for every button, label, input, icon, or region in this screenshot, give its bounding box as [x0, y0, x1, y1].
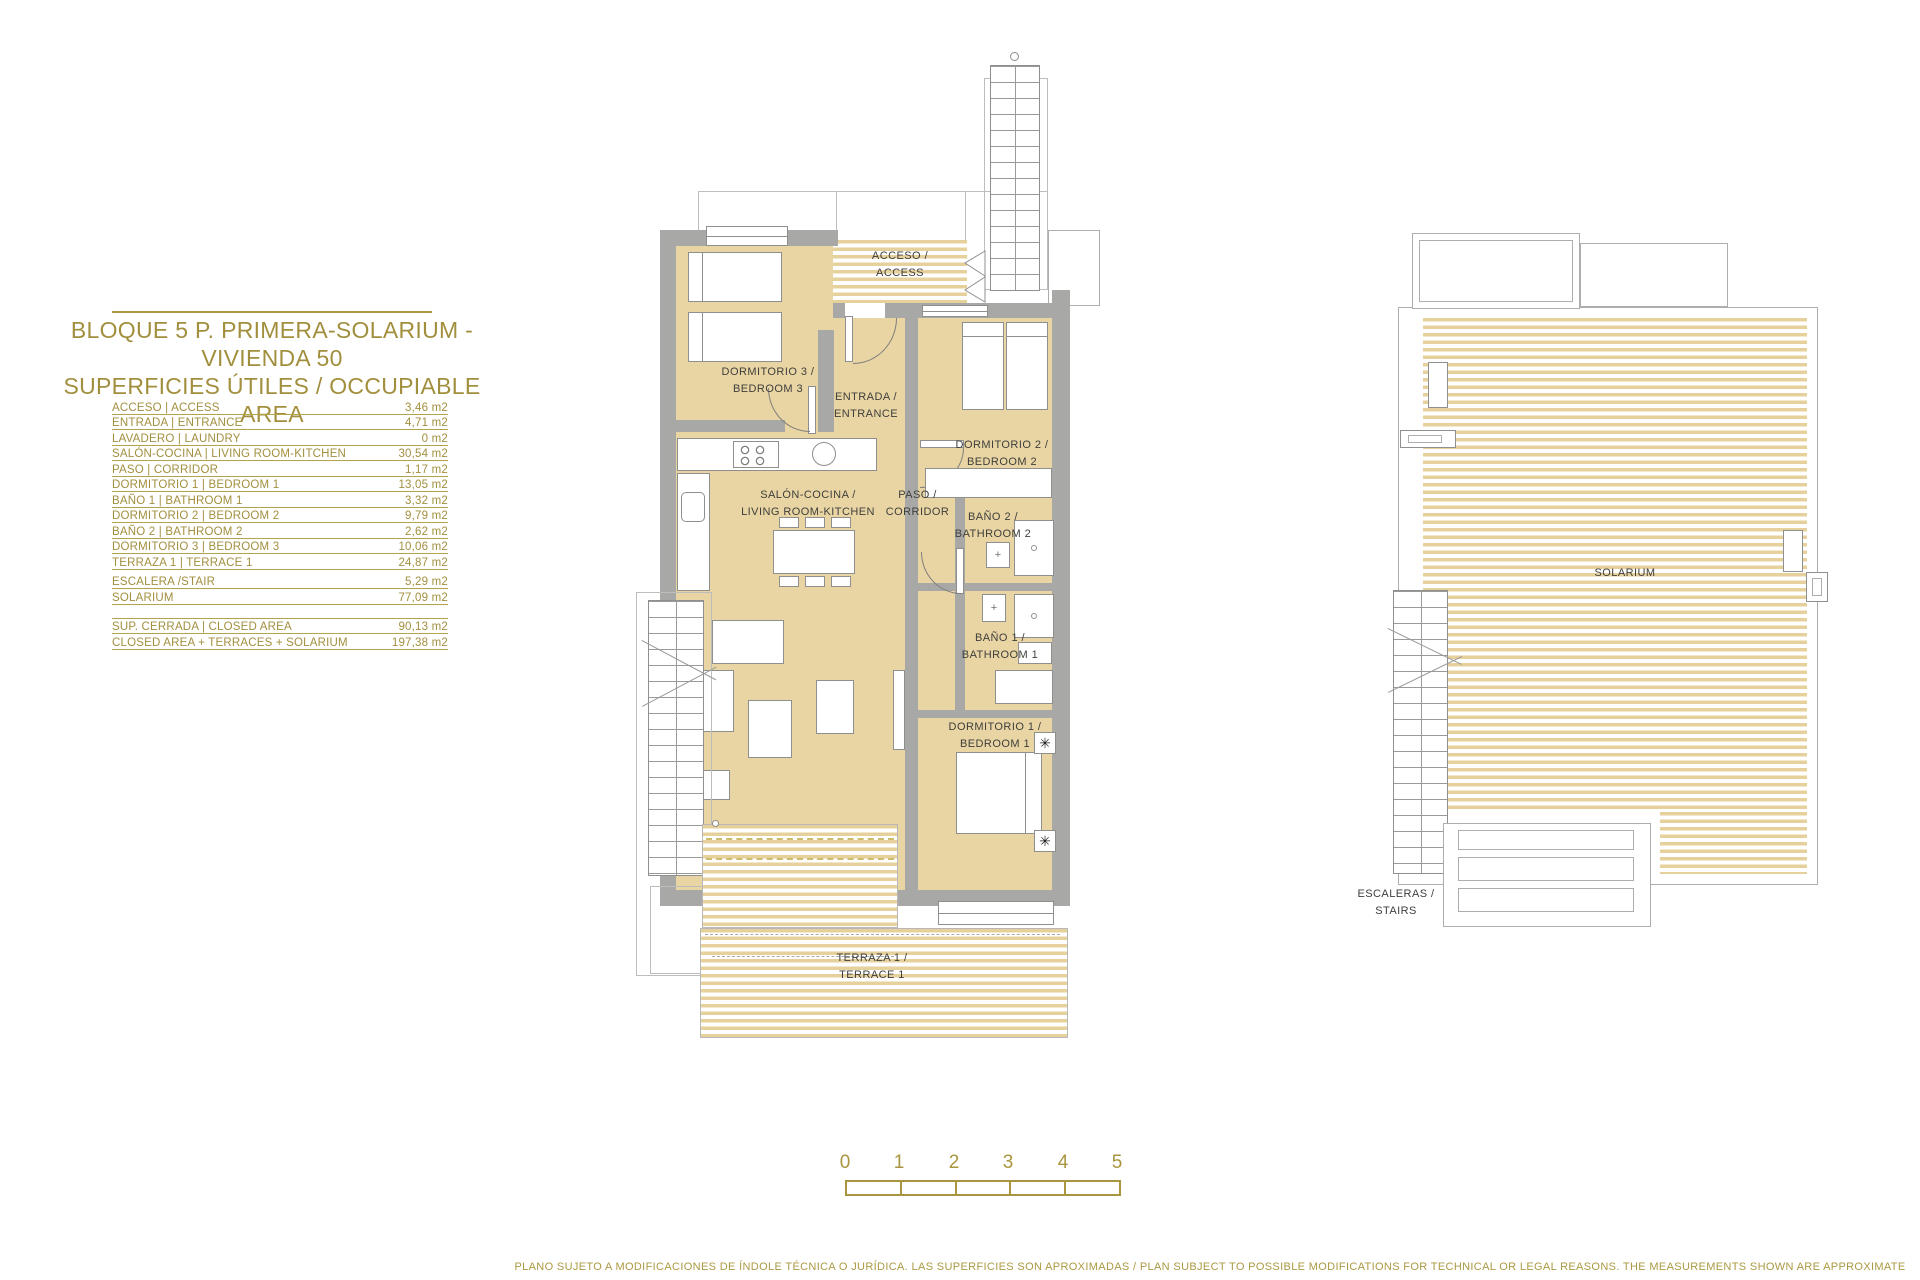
disclaimer-text: PLANO SUJETO A MODIFICACIONES DE ÍNDOLE …	[500, 1261, 1920, 1273]
label-line: ENTRANCE	[796, 406, 936, 423]
window-dorm3	[706, 226, 788, 246]
bed	[688, 252, 782, 302]
entry-door-leaf	[845, 316, 853, 362]
label-line: BATHROOM 2	[923, 526, 1063, 543]
room-label-dormitorio2: DORMITORIO 2 / BEDROOM 2	[932, 437, 1072, 471]
solarium-unit-inner	[1812, 578, 1822, 596]
stove-icon	[733, 441, 779, 468]
row-label: SOLARIUM	[112, 592, 174, 604]
floor-plan-sheet: BLOQUE 5 P. PRIMERA-SOLARIUM - VIVIENDA …	[0, 0, 1920, 1280]
label-line: SOLARIUM	[1555, 565, 1695, 582]
closet-dorm1	[995, 670, 1053, 704]
table-total-row: CLOSED AREA + TERRACES + SOLARIUM197,38 …	[112, 634, 448, 650]
label-line: DORMITORIO 3 /	[698, 364, 838, 381]
row-value: 13,05 m2	[398, 479, 448, 491]
row-label: LAVADERO | LAUNDRY	[112, 433, 241, 445]
solarium-staircase	[1393, 590, 1448, 874]
row-label: ESCALERA /STAIR	[112, 576, 215, 588]
label-line: ENTRADA /	[796, 389, 936, 406]
row-label: SALÓN-COCINA | LIVING ROOM-KITCHEN	[112, 448, 346, 460]
title-rule	[112, 311, 432, 313]
row-value: 1,17 m2	[405, 464, 448, 476]
chair	[805, 576, 825, 587]
table-row: SOLARIUM77,09 m2	[112, 589, 448, 605]
label-line: TERRACE 1	[802, 967, 942, 984]
room-label-dormitorio1: DORMITORIO 1 / BEDROOM 1	[925, 719, 1065, 753]
label-line: ACCESO /	[830, 248, 970, 265]
row-label: ENTRADA | ENTRANCE	[112, 417, 243, 429]
row-label: CLOSED AREA + TERRACES + SOLARIUM	[112, 637, 348, 649]
row-label: TERRAZA 1 | TERRACE 1	[112, 557, 253, 569]
row-value: 4,71 m2	[405, 417, 448, 429]
pergola-dash	[706, 858, 894, 860]
fan-icon: ✳	[1034, 830, 1056, 852]
row-label: DORMITORIO 2 | BEDROOM 2	[112, 510, 279, 522]
window-dorm2	[922, 305, 988, 317]
room-label-solarium: SOLARIUM	[1555, 565, 1695, 582]
table-row: BAÑO 2 | BATHROOM 22,62 m2	[112, 523, 448, 539]
scale-segment	[847, 1182, 902, 1194]
scale-segment	[1011, 1182, 1066, 1194]
row-label: BAÑO 1 | BATHROOM 1	[112, 495, 243, 507]
table-row: DORMITORIO 2 | BEDROOM 29,79 m2	[112, 508, 448, 524]
table-row: PASO | CORRIDOR1,17 m2	[112, 461, 448, 477]
chair	[779, 576, 799, 587]
table-row: ACCESO | ACCESS3,46 m2	[112, 399, 448, 415]
scale-segment	[902, 1182, 957, 1194]
label-line: ACCESS	[830, 265, 970, 282]
dining-table	[773, 530, 855, 574]
scale-bar-ruler	[845, 1180, 1121, 1196]
context-line	[698, 191, 699, 231]
tv-unit	[893, 670, 905, 750]
planter	[1458, 830, 1634, 850]
sink-icon: +	[982, 594, 1006, 622]
planter	[1458, 888, 1634, 912]
kitchen-counter-side	[677, 473, 710, 591]
chair	[831, 576, 851, 587]
coffee-table	[748, 700, 792, 758]
terrace-dash	[705, 934, 1060, 935]
table-total-row: SUP. CERRADA | CLOSED AREA90,13 m2	[112, 619, 448, 635]
table-row: BAÑO 1 | BATHROOM 13,32 m2	[112, 492, 448, 508]
wall-east	[1052, 290, 1070, 906]
label-line: ESCALERAS /	[1326, 886, 1466, 903]
scale-tick-label: 5	[1106, 1152, 1128, 1174]
exterior-staircase	[648, 600, 704, 876]
row-label: DORMITORIO 3 | BEDROOM 3	[112, 541, 279, 553]
scale-tick-label: 2	[943, 1152, 965, 1174]
label-line: BEDROOM 2	[932, 454, 1072, 471]
scale-tick-label: 3	[997, 1152, 1019, 1174]
scale-bar: 0 1 2 3 4 5	[845, 1152, 1117, 1198]
label-line: DORMITORIO 1 /	[925, 719, 1065, 736]
sofa	[712, 620, 784, 664]
row-value: 5,29 m2	[405, 576, 448, 588]
pergola-dash	[706, 838, 894, 840]
table-row: SALÓN-COCINA | LIVING ROOM-KITCHEN30,54 …	[112, 446, 448, 462]
label-line: PASO /	[855, 487, 980, 504]
room-label-terraza: TERRAZA 1 / TERRACE 1	[802, 950, 942, 984]
scale-segment	[1066, 1182, 1119, 1194]
table-row: TERRAZA 1 | TERRACE 124,87 m2	[112, 554, 448, 570]
label-line: BEDROOM 1	[925, 736, 1065, 753]
room-label-entrada: ENTRADA / ENTRANCE	[796, 389, 936, 423]
access-staircase	[990, 65, 1040, 291]
bed	[1006, 322, 1048, 410]
solarium-deck-lower	[1660, 812, 1807, 874]
table-row: ENTRADA | ENTRANCE4,71 m2	[112, 415, 448, 431]
row-value: 30,54 m2	[398, 448, 448, 460]
bed	[688, 312, 782, 362]
double-bed	[956, 752, 1042, 834]
row-label: SUP. CERRADA | CLOSED AREA	[112, 621, 292, 633]
page-title: BLOQUE 5 P. PRIMERA-SOLARIUM - VIVIENDA …	[40, 316, 504, 372]
areas-table: ACCESO | ACCESS3,46 m2 ENTRADA | ENTRANC…	[112, 399, 448, 650]
context-line	[965, 191, 966, 241]
kitchen-sink-icon	[812, 442, 836, 466]
row-label: DORMITORIO 1 | BEDROOM 1	[112, 479, 279, 491]
window-dorm1	[938, 901, 1054, 925]
room-label-bano1: BAÑO 1 / BATHROOM 1	[930, 630, 1070, 664]
row-value: 90,13 m2	[398, 621, 448, 633]
row-value: 2,62 m2	[405, 526, 448, 538]
solarium-notch	[1580, 243, 1728, 307]
bed	[962, 322, 1004, 410]
solarium-bench	[1428, 362, 1448, 408]
table-row: LAVADERO | LAUNDRY0 m2	[112, 430, 448, 446]
row-value: 77,09 m2	[398, 592, 448, 604]
scale-tick-label: 1	[888, 1152, 910, 1174]
table-row: ESCALERA /STAIR5,29 m2	[112, 574, 448, 590]
row-value: 9,79 m2	[405, 510, 448, 522]
row-label: ACCESO | ACCESS	[112, 402, 220, 414]
wall-dorm1-north	[918, 710, 1052, 718]
scale-tick-label: 4	[1052, 1152, 1074, 1174]
planter	[1458, 857, 1634, 881]
drain-point	[712, 820, 719, 827]
room-label-acceso: ACCESO / ACCESS	[830, 248, 970, 282]
solarium-bench	[1783, 530, 1803, 572]
label-line: BATHROOM 1	[930, 647, 1070, 664]
armchair	[816, 680, 854, 734]
table-row: DORMITORIO 1 | BEDROOM 113,05 m2	[112, 477, 448, 493]
room-label-escaleras: ESCALERAS / STAIRS	[1326, 886, 1466, 920]
label-line: DORMITORIO 2 /	[932, 437, 1072, 454]
row-value: 24,87 m2	[398, 557, 448, 569]
row-label: PASO | CORRIDOR	[112, 464, 218, 476]
label-line: TERRAZA 1 /	[802, 950, 942, 967]
row-label: BAÑO 2 | BATHROOM 2	[112, 526, 243, 538]
room-label-bano2: BAÑO 2 / BATHROOM 2	[923, 509, 1063, 543]
label-line: STAIRS	[1326, 903, 1466, 920]
table-row: DORMITORIO 3 | BEDROOM 310,06 m2	[112, 539, 448, 555]
laundry-sink-icon	[681, 492, 705, 522]
scale-tick-label: 0	[834, 1152, 856, 1174]
label-line: BAÑO 1 /	[930, 630, 1070, 647]
row-value: 197,38 m2	[392, 637, 448, 649]
wall-dorm3-south	[675, 420, 785, 432]
row-value: 10,06 m2	[398, 541, 448, 553]
sink-icon: +	[986, 542, 1010, 568]
solarium-notch-inner	[1419, 240, 1573, 302]
label-line: BAÑO 2 /	[923, 509, 1063, 526]
row-value: 0 m2	[422, 433, 448, 445]
scale-segment	[957, 1182, 1012, 1194]
row-value: 3,46 m2	[405, 402, 448, 414]
row-value: 3,32 m2	[405, 495, 448, 507]
stair-post	[1010, 52, 1019, 61]
table-spacer	[112, 605, 448, 619]
solarium-sink-inner	[1408, 435, 1442, 443]
